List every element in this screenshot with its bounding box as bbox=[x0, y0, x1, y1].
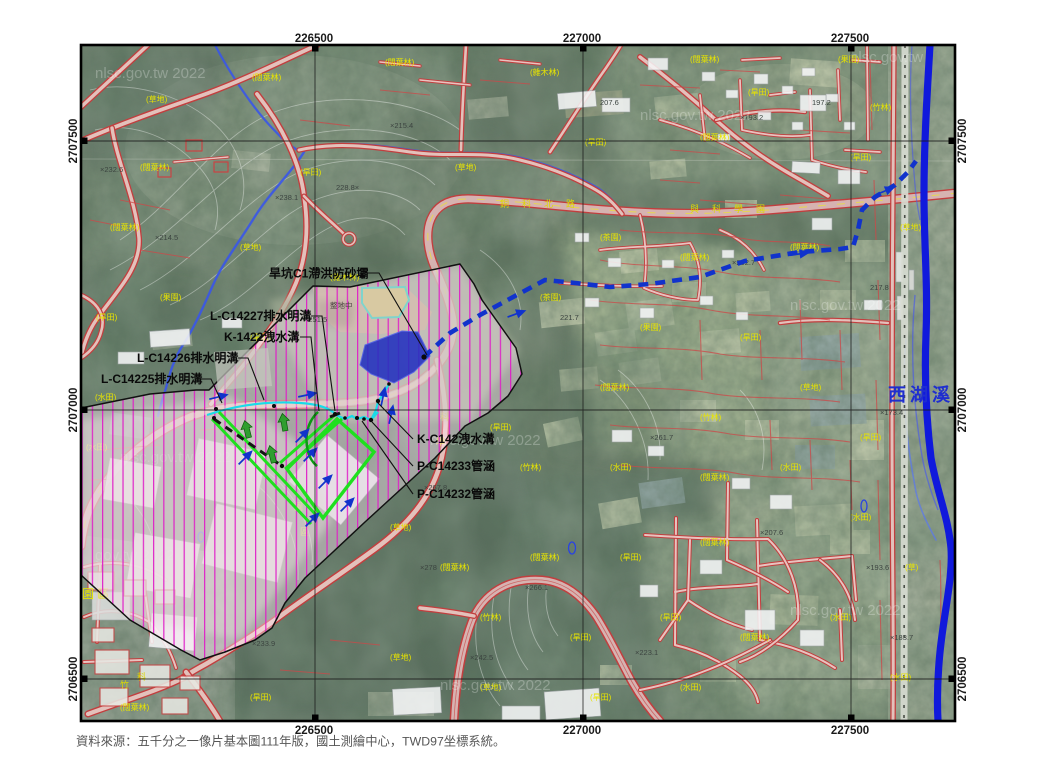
svg-text:2706500: 2706500 bbox=[957, 657, 969, 702]
svg-text:(闊葉林): (闊葉林) bbox=[120, 702, 150, 712]
svg-text:×215.4: ×215.4 bbox=[390, 121, 413, 130]
svg-text:(旱田): (旱田) bbox=[740, 333, 762, 342]
svg-text:2706500: 2706500 bbox=[68, 657, 80, 702]
svg-text:(水田): (水田) bbox=[610, 462, 632, 472]
svg-text:×238.1: ×238.1 bbox=[275, 193, 298, 202]
svg-text:(旱田): (旱田) bbox=[860, 433, 882, 442]
svg-text:nlsc.gov.tw 2022: nlsc.gov.tw 2022 bbox=[790, 602, 901, 619]
svg-text:(竹林): (竹林) bbox=[870, 102, 892, 112]
svg-text:與科學園: 與科學園 bbox=[690, 203, 778, 214]
svg-text:整地中: 整地中 bbox=[330, 300, 353, 310]
svg-text:(旱田): (旱田) bbox=[570, 633, 592, 642]
svg-text:(闊葉林): (闊葉林) bbox=[252, 72, 282, 82]
svg-text:西湖溪: 西湖溪 bbox=[888, 385, 954, 405]
svg-text:221.7: 221.7 bbox=[560, 313, 579, 322]
svg-text:(茶園): (茶園) bbox=[600, 232, 622, 242]
svg-text:×173.4: ×173.4 bbox=[880, 408, 903, 417]
svg-text:(闊葉林): (闊葉林) bbox=[690, 54, 720, 64]
svg-text:(闊葉林): (闊葉林) bbox=[140, 162, 170, 172]
svg-text:(水田): (水田) bbox=[780, 462, 802, 472]
svg-text:(竹林): (竹林) bbox=[480, 612, 502, 622]
svg-text:P-C14233管涵: P-C14233管涵 bbox=[417, 458, 495, 473]
svg-text:科: 科 bbox=[137, 671, 146, 682]
svg-text:(水田): (水田) bbox=[850, 512, 872, 522]
svg-text:(茶園): (茶園) bbox=[540, 292, 562, 302]
svg-text:(闊葉林): (闊葉林) bbox=[110, 222, 140, 232]
svg-text:L-C14225排水明溝: L-C14225排水明溝 bbox=[101, 371, 202, 386]
svg-text:銅科北路: 銅科北路 bbox=[500, 198, 588, 209]
svg-text:(草地): (草地) bbox=[390, 652, 412, 662]
svg-text:K-1422洩水溝: K-1422洩水溝 bbox=[224, 329, 299, 344]
svg-text:L-C14226排水明溝: L-C14226排水明溝 bbox=[137, 350, 238, 365]
svg-text:nlsc.gov.tw 2022: nlsc.gov.tw 2022 bbox=[790, 297, 901, 314]
svg-text:227500: 227500 bbox=[831, 725, 869, 737]
svg-text:(闊葉林): (闊葉林) bbox=[700, 472, 730, 482]
svg-text:旱坑C1滯洪防砂壩: 旱坑C1滯洪防砂壩 bbox=[269, 266, 368, 281]
svg-text:資料來源：五千分之一像片基本圖111年版，國土測繪中心，TW: 資料來源：五千分之一像片基本圖111年版，國土測繪中心，TWD97坐標系統。 bbox=[76, 734, 505, 749]
svg-text:(旱田): (旱田) bbox=[490, 423, 512, 432]
svg-text:2707500: 2707500 bbox=[68, 119, 80, 164]
svg-text:(闊葉林): (闊葉林) bbox=[440, 562, 470, 572]
svg-text:(果園): (果園) bbox=[160, 293, 182, 302]
svg-text:(旱田): (旱田) bbox=[96, 313, 118, 322]
svg-text:P-C14232管涵: P-C14232管涵 bbox=[417, 486, 495, 501]
svg-text:×193.6: ×193.6 bbox=[866, 563, 889, 572]
svg-text:227000: 227000 bbox=[563, 725, 601, 737]
svg-text:×266.1: ×266.1 bbox=[525, 583, 548, 592]
svg-text:227000: 227000 bbox=[563, 33, 601, 45]
svg-text:×183.7: ×183.7 bbox=[890, 633, 913, 642]
svg-text:227500: 227500 bbox=[831, 33, 869, 45]
svg-text:×207.6: ×207.6 bbox=[760, 528, 783, 537]
svg-text:K-C142洩水溝: K-C142洩水溝 bbox=[417, 431, 494, 446]
svg-text:2707000: 2707000 bbox=[68, 388, 80, 433]
svg-text:(闊葉林): (闊葉林) bbox=[385, 57, 415, 67]
svg-text:nlsc.gov.tw 2022: nlsc.gov.tw 2022 bbox=[440, 677, 551, 694]
svg-text:nlsc.gov.tw: nlsc.gov.tw bbox=[850, 49, 923, 66]
svg-text:(雜木林): (雜木林) bbox=[530, 67, 560, 77]
svg-text:(果園): (果園) bbox=[640, 323, 662, 332]
svg-text:(闊葉林): (闊葉林) bbox=[600, 382, 630, 392]
svg-text:207.6: 207.6 bbox=[600, 98, 619, 107]
svg-text:×278: ×278 bbox=[420, 563, 437, 572]
svg-text:(草地): (草地) bbox=[146, 94, 168, 104]
svg-text:228.8×: 228.8× bbox=[336, 183, 359, 192]
svg-text:(闊葉林): (闊葉林) bbox=[530, 552, 560, 562]
svg-text:(旱田): (旱田) bbox=[850, 153, 872, 162]
svg-text:197.2: 197.2 bbox=[812, 98, 831, 107]
svg-text:(旱田): (旱田) bbox=[585, 138, 607, 147]
svg-text:×242.5: ×242.5 bbox=[470, 653, 493, 662]
svg-text:×214.5: ×214.5 bbox=[155, 233, 178, 242]
svg-text:(旱田): (旱田) bbox=[660, 613, 682, 622]
svg-text:(水田): (水田) bbox=[95, 392, 117, 402]
svg-text:×223.1: ×223.1 bbox=[635, 648, 658, 657]
svg-text:竹: 竹 bbox=[120, 679, 129, 690]
svg-text:(旱田): (旱田) bbox=[590, 693, 612, 702]
svg-text:(旱田): (旱田) bbox=[748, 88, 770, 97]
svg-text:nlsc.gov.tw 2022: nlsc.gov.tw 2022 bbox=[95, 65, 206, 82]
svg-text:(草地): (草地) bbox=[455, 162, 477, 172]
svg-text:217.8: 217.8 bbox=[870, 283, 889, 292]
svg-text:(旱田): (旱田) bbox=[620, 553, 642, 562]
svg-text:(草地): (草地) bbox=[390, 522, 412, 532]
svg-text:×261.7: ×261.7 bbox=[650, 433, 673, 442]
svg-text:(草地): (草地) bbox=[240, 242, 262, 252]
svg-text:(水田): (水田) bbox=[890, 672, 912, 682]
svg-text:(旱田): (旱田) bbox=[250, 693, 272, 702]
svg-text:(草地): (草地) bbox=[800, 382, 822, 392]
svg-text:226500: 226500 bbox=[295, 33, 333, 45]
svg-text:(闊葉林): (闊葉林) bbox=[700, 537, 730, 547]
svg-text:(竹林): (竹林) bbox=[520, 462, 542, 472]
svg-text:(闊葉林): (闊葉林) bbox=[680, 252, 710, 262]
svg-text:L-C14227排水明溝: L-C14227排水明溝 bbox=[210, 308, 311, 323]
svg-text:(旱田): (旱田) bbox=[300, 168, 322, 177]
svg-text:(闊葉林): (闊葉林) bbox=[700, 132, 730, 142]
svg-text:(水田): (水田) bbox=[680, 682, 702, 692]
svg-text:(草): (草) bbox=[905, 562, 919, 572]
svg-text:(闊葉林): (闊葉林) bbox=[740, 632, 770, 642]
svg-text:nlsc.gov.tw 2022: nlsc.gov.tw 2022 bbox=[640, 107, 751, 124]
svg-text:(竹林): (竹林) bbox=[700, 412, 722, 422]
svg-text:(草地): (草地) bbox=[900, 222, 922, 232]
svg-text:×232.6: ×232.6 bbox=[100, 165, 123, 174]
svg-text:2707000: 2707000 bbox=[957, 388, 969, 433]
svg-text:2707500: 2707500 bbox=[957, 119, 969, 164]
